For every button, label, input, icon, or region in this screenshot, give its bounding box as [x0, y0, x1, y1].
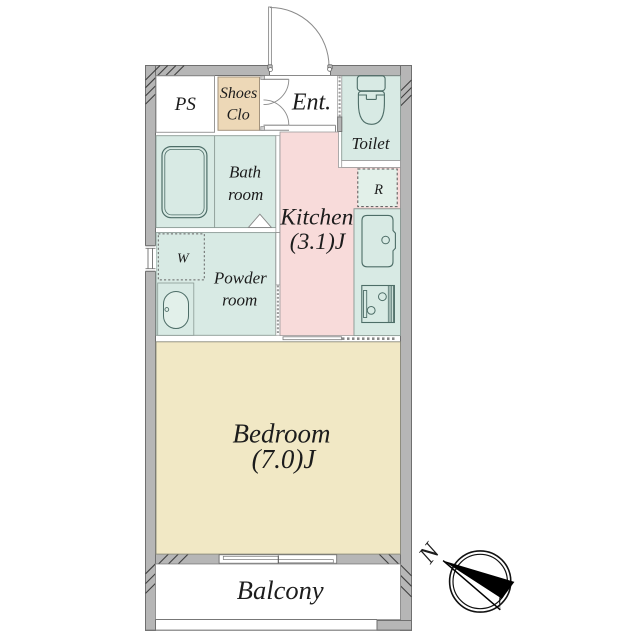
- svg-text:Kitchen: Kitchen: [279, 205, 353, 231]
- svg-text:(7.0)J: (7.0)J: [252, 444, 318, 474]
- svg-text:room: room: [228, 185, 263, 204]
- svg-text:Bath: Bath: [229, 163, 261, 182]
- svg-text:W: W: [177, 252, 190, 267]
- svg-text:Powder: Powder: [213, 269, 267, 288]
- svg-text:Ent.: Ent.: [291, 90, 331, 116]
- svg-text:Toilet: Toilet: [351, 134, 390, 153]
- svg-text:N: N: [413, 538, 446, 570]
- svg-text:Balcony: Balcony: [237, 575, 324, 605]
- svg-text:Clo: Clo: [227, 107, 250, 124]
- svg-text:Shoes: Shoes: [220, 85, 257, 102]
- svg-text:(3.1)J: (3.1)J: [290, 229, 347, 255]
- svg-text:PS: PS: [174, 94, 197, 115]
- svg-text:R: R: [373, 182, 383, 198]
- svg-text:room: room: [222, 291, 257, 310]
